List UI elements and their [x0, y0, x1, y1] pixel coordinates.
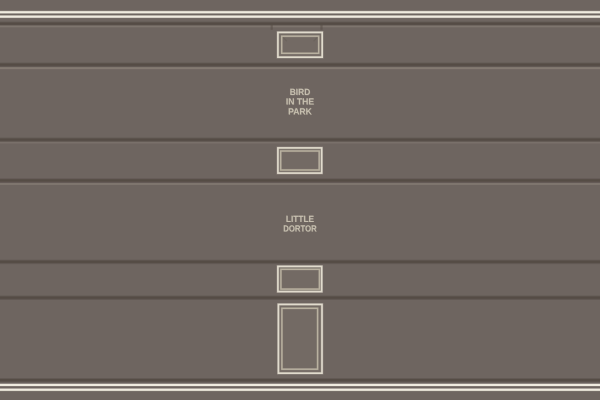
svg-text:IN THE: IN THE	[286, 97, 314, 107]
svg-text:BIRD: BIRD	[290, 87, 311, 97]
svg-text:LITTLE: LITTLE	[286, 214, 314, 224]
svg-text:DORTOR: DORTOR	[283, 224, 317, 234]
svg-text:PARK: PARK	[288, 107, 312, 117]
